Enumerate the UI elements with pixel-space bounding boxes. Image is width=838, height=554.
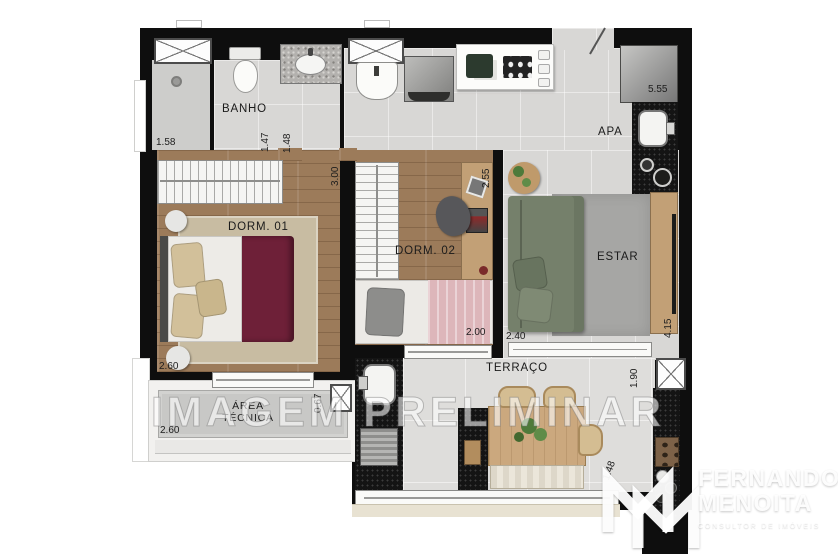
washer-door-icon (408, 92, 450, 101)
room-label-apa: APA (598, 126, 623, 138)
shower-drain-icon (171, 76, 182, 87)
dimension-dorm1-width: 2.60 (159, 361, 178, 372)
island-cooktop-icon (503, 56, 532, 78)
room-label-dorm1: DORM. 01 (228, 221, 289, 233)
estar-plant2-icon (522, 178, 531, 187)
watermark-text: IMAGEM PRELIMINAR (138, 388, 678, 436)
terraco-bench (490, 465, 584, 489)
room-label-banho: BANHO (222, 103, 267, 115)
terraco-right-window (656, 358, 686, 390)
tv-icon (672, 214, 676, 314)
terraco-outer-face (352, 504, 620, 517)
floorplan-canvas: BANHO APA DORM. 01 DORM. 02 ESTAR TERRAÇ… (0, 0, 838, 554)
coffee-machine-icon (466, 54, 493, 78)
terraco-island-board-icon (464, 440, 481, 465)
dorm1-wardrobe (157, 160, 283, 204)
room-label-terraco: TERRAÇO (486, 362, 548, 374)
toilet-bowl-icon (233, 60, 258, 93)
logo-name-line2: MENOITA (698, 491, 838, 516)
dimension-terraco-depth: 1.90 (629, 369, 640, 388)
logo-tagline: CONSULTOR DE IMÓVEIS (698, 523, 838, 530)
logo-monogram-icon (600, 450, 704, 554)
dorm2-door-opening (339, 148, 357, 161)
cooktop-burner-small-icon (640, 158, 654, 172)
area-tecnica-ledge (155, 440, 351, 454)
dimension-dorm2-depth: 2.55 (481, 169, 492, 188)
island-dish-icon (538, 50, 550, 60)
dimension-shower: 1.58 (156, 137, 175, 148)
logo-name-line1: FERNANDO (698, 466, 838, 491)
vent-top-left (176, 20, 202, 28)
sofa-pillow2-icon (516, 286, 554, 324)
outer-cut-bottom-left (140, 458, 352, 510)
dorm2-pillow-icon (365, 287, 405, 337)
dorm2-flower-icon (479, 266, 488, 275)
dimension-dorm2-bed: 2.00 (466, 327, 485, 338)
room-label-dorm2: DORM. 02 (395, 245, 456, 257)
dimension-banho-right: 1.48 (282, 134, 293, 153)
dorm1-pillow3-icon (194, 278, 227, 318)
banho-sink-icon (295, 54, 326, 75)
dorm2-window (404, 345, 492, 359)
banho-faucet-icon (308, 48, 313, 56)
dimension-estar-depth: 4.15 (663, 319, 674, 338)
island-dish2-icon (538, 64, 550, 74)
vent-top-mid (364, 20, 390, 28)
kitchen-sink-icon (638, 110, 668, 147)
dorm1-bed-cover (242, 236, 294, 342)
island-dish3-icon (538, 78, 550, 87)
dimension-banho-left: 1.47 (260, 133, 271, 152)
dorm1-stool-top-icon (165, 210, 187, 232)
dimension-estar-width: 2.40 (506, 331, 525, 342)
entry-door-opening (552, 28, 614, 50)
dorm1-bed-headboard (160, 236, 168, 342)
kitchen-faucet-icon (666, 122, 675, 135)
toilet-tank (229, 47, 261, 60)
brand-logo: FERNANDO MENOITA CONSULTOR DE IMÓVEIS (600, 448, 838, 554)
dimension-kitchen-counter: 5.55 (648, 84, 667, 95)
hall-washbasin-faucet-icon (374, 66, 379, 76)
room-label-estar: ESTAR (597, 251, 639, 263)
pillar-top-left (134, 80, 146, 152)
cooktop-burner-large-icon (653, 168, 672, 187)
dorm1-wardrobe-rod (160, 180, 280, 182)
hall-window (348, 38, 404, 64)
estar-terraco-sliding-door (508, 342, 652, 357)
dorm2-wardrobe-rod (376, 165, 378, 277)
shower-window (154, 38, 212, 64)
dorm1-window (212, 372, 314, 388)
dimension-dorm1-depth: 3.00 (330, 167, 341, 186)
estar-plant1-icon (513, 166, 524, 177)
